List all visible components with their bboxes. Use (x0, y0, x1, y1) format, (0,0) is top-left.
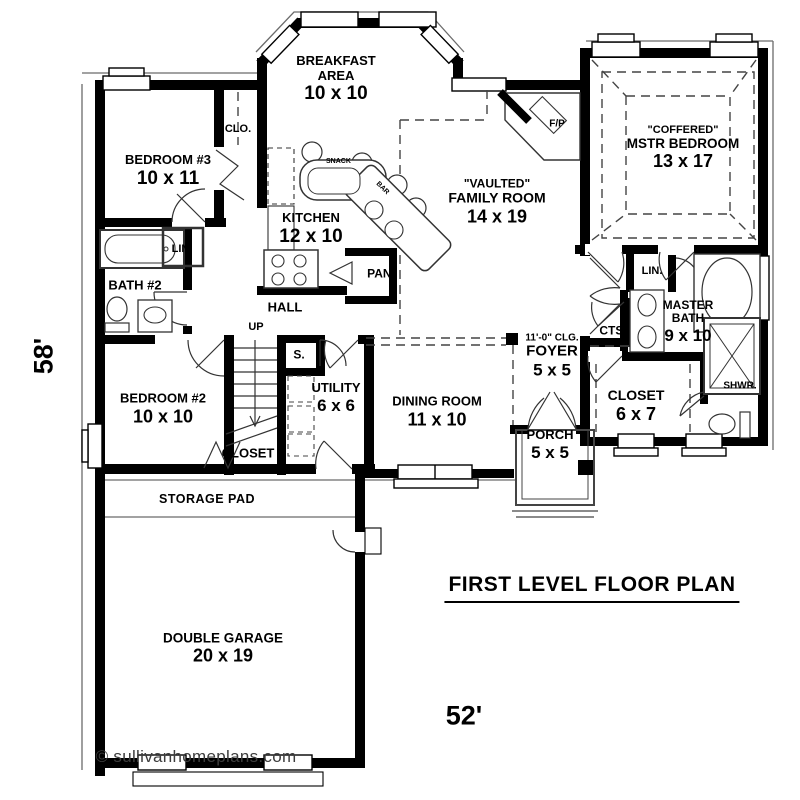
room-label-garage: DOUBLE GARAGE 20 x 19 (163, 630, 283, 665)
room-label-master-bath: MASTER BATH 9 x 10 (663, 299, 714, 345)
room-label-bath2: BATH #2 (108, 279, 161, 294)
label-stairs-up: UP (248, 321, 263, 333)
floor-plan-page: SNACK BAR BREAKFAST AREA 10 x 10 (0, 0, 800, 800)
label-coats-closet: CTS. (599, 324, 626, 337)
label-stair-closet: S. (293, 348, 304, 361)
watermark-text: © sullivanhomeplans.com (96, 747, 297, 767)
label-shower: SHWR. (723, 380, 756, 391)
room-label-dining: DINING ROOM 11 x 10 (392, 395, 482, 430)
label-linen-bath2: LIN. (172, 243, 193, 255)
room-label-bedroom2: BEDROOM #2 10 x 10 (120, 392, 206, 427)
room-label-master-bedroom: "COFFERED" MSTR BEDROOM 13 x 17 (627, 124, 740, 172)
plan-title: FIRST LEVEL FLOOR PLAN (444, 573, 739, 603)
height-dimension: 58' (29, 338, 60, 374)
label-fireplace: F/P (549, 118, 565, 129)
island-label-snack: SNACK (326, 158, 351, 165)
room-label-hall: HALL (268, 301, 303, 316)
room-label-breakfast: BREAKFAST AREA 10 x 10 (296, 54, 375, 104)
room-label-porch: PORCH 5 x 5 (527, 428, 574, 462)
label-pantry: PAN. (367, 267, 395, 280)
room-label-family: "VAULTED" FAMILY ROOM 14 x 19 (448, 177, 545, 226)
room-label-utility: UTILITY 6 x 6 (311, 381, 360, 415)
room-label-kitchen: KITCHEN 12 x 10 (279, 211, 342, 247)
label-linen-master: LIN. (642, 265, 663, 277)
label-storage-pad: STORAGE PAD (159, 492, 255, 506)
room-label-foyer: 11'-0" CLG. FOYER 5 x 5 (525, 332, 578, 379)
label-closet3: CLO. (225, 123, 251, 135)
fireplace (500, 92, 580, 160)
room-label-master-closet: CLOSET 6 x 7 (608, 388, 665, 424)
room-label-closet2: CLOSET (222, 447, 275, 462)
width-dimension: 52' (446, 701, 482, 732)
room-label-bedroom3: BEDROOM #3 10 x 11 (125, 153, 211, 189)
utility-appliances (288, 376, 314, 456)
